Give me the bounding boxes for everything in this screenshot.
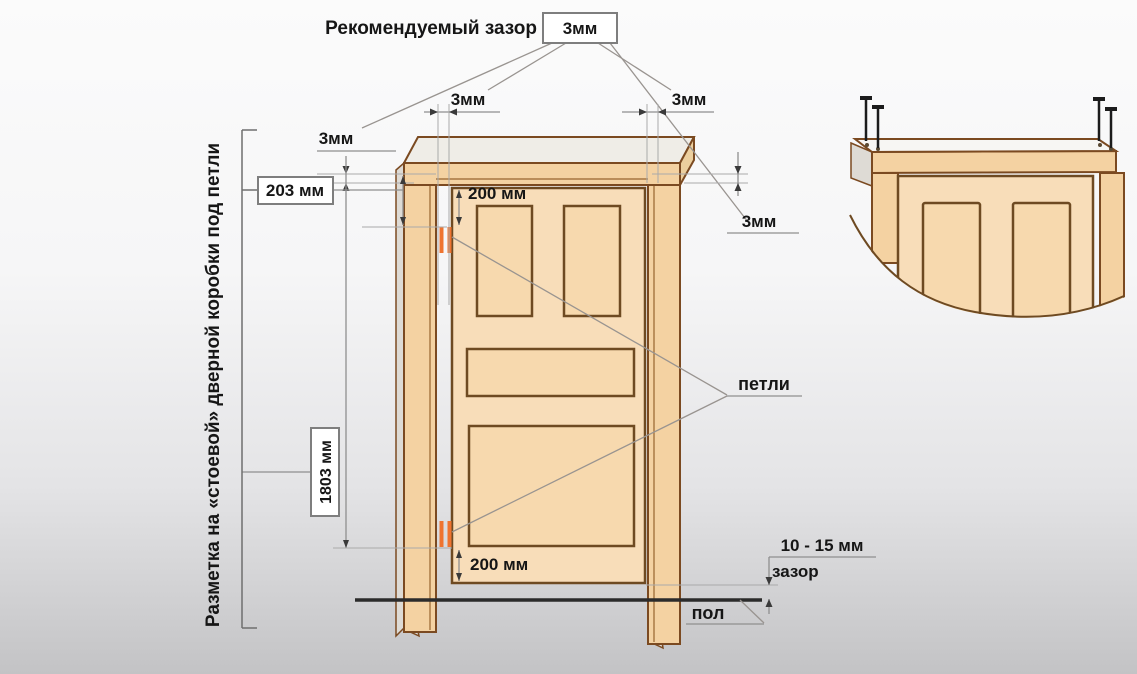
- door-panel-middle: [467, 349, 634, 396]
- gap-right-side-label: 3мм: [742, 212, 777, 231]
- hinge-bottom-inset-label: 200 мм: [470, 555, 528, 574]
- door-installation-diagram: Рекомендуемый зазор 3мм 3мм 3мм 3мм 3мм …: [0, 0, 1137, 674]
- floor-gap-value-label: 10 - 15 мм: [781, 536, 864, 555]
- door-frame-left-jamb: [404, 170, 436, 632]
- hinge-top-offset-label: 203 мм: [266, 181, 324, 200]
- diagram-canvas: Рекомендуемый зазор 3мм 3мм 3мм 3мм 3мм …: [0, 0, 1137, 674]
- hinges-label: петли: [738, 374, 790, 394]
- detail-lintel-top-face: [855, 139, 1116, 152]
- hinge-span-label: 1803 мм: [318, 440, 335, 504]
- left-jamb-side-face: [396, 163, 404, 636]
- lintel-top-face: [404, 137, 694, 163]
- hinge-mark-top: [440, 227, 452, 253]
- door-frame-lintel: [404, 163, 680, 185]
- diagram-title: Рекомендуемый зазор: [325, 18, 537, 39]
- door-frame-drawing: [396, 137, 694, 648]
- screw-icon-right-1: [1093, 99, 1105, 141]
- floor-gap-word-label: зазор: [772, 562, 819, 581]
- door-panel-top-left: [477, 206, 532, 316]
- floor-label: пол: [692, 603, 725, 623]
- detail-lintel-front: [872, 151, 1116, 173]
- detail-left-jamb: [872, 173, 898, 263]
- screw-icon-left-1: [860, 98, 872, 141]
- gap-left-outer-label: 3мм: [319, 129, 354, 148]
- detail-door-panel-right: [1013, 203, 1070, 343]
- door-frame-right-jamb: [648, 170, 680, 644]
- hinge-mark-bottom: [440, 521, 452, 547]
- detail-right-jamb: [1100, 173, 1124, 313]
- detail-view-top-corner: [850, 98, 1124, 343]
- gap-left-top-label: 3мм: [451, 90, 486, 109]
- hinge-top-inset-label: 200 мм: [468, 184, 526, 203]
- door-panel-bottom: [469, 426, 634, 546]
- gap-value-label: 3мм: [563, 19, 598, 38]
- side-note-label: Разметка на «стоевой» дверной коробки по…: [203, 143, 224, 627]
- gap-right-top-label: 3мм: [672, 90, 707, 109]
- screw-icon-right-2: [1105, 109, 1117, 148]
- door-panel-top-right: [564, 206, 620, 316]
- detail-door-panel-left: [923, 203, 980, 343]
